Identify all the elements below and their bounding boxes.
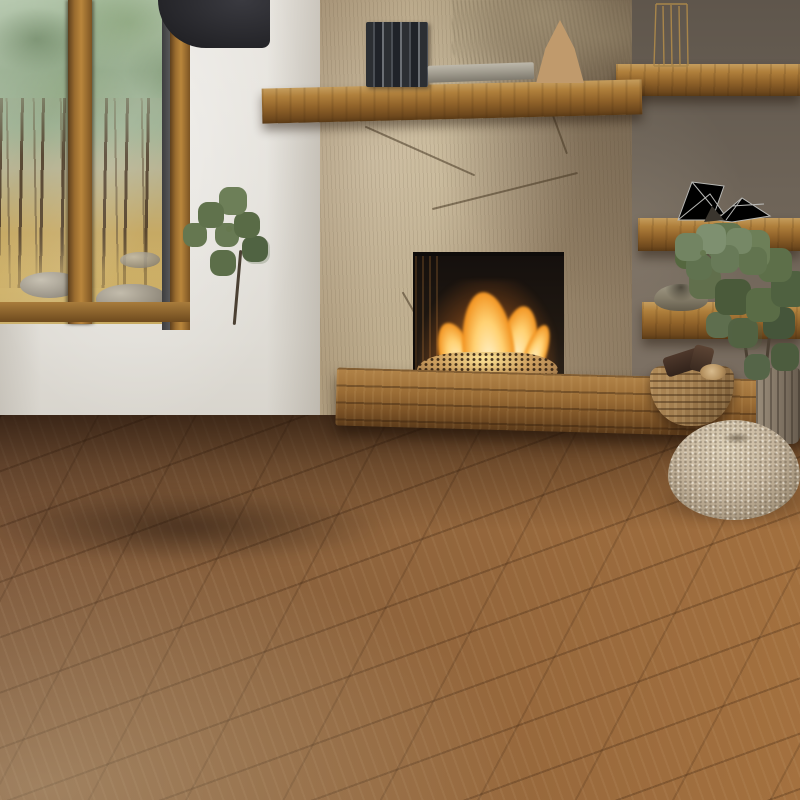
window-mullion bbox=[68, 0, 92, 324]
wire-sculpture bbox=[672, 176, 776, 224]
large-plant-foliage bbox=[700, 250, 706, 256]
large-plant-foliage bbox=[742, 268, 748, 274]
stone-bowl bbox=[654, 284, 708, 311]
living-room-photo bbox=[0, 0, 800, 800]
books bbox=[366, 22, 428, 87]
pouf-dimple bbox=[722, 432, 752, 444]
window-sill bbox=[0, 302, 190, 322]
window-frame bbox=[170, 0, 190, 330]
firewood-log bbox=[700, 364, 726, 380]
sofa-side-plant bbox=[226, 226, 232, 232]
brass-wire-object bbox=[650, 2, 694, 68]
wall-shelf-top bbox=[616, 64, 800, 96]
